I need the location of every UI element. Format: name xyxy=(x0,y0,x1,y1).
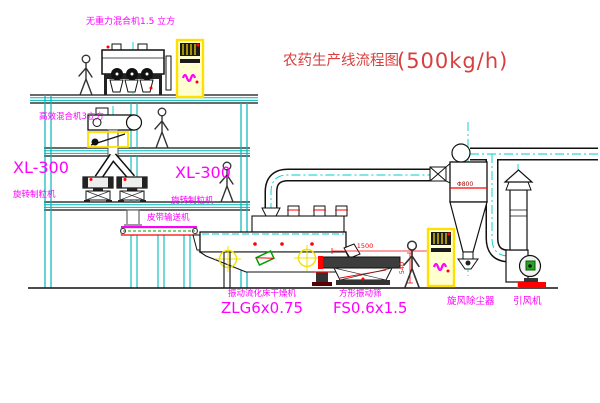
induced-draft-fan xyxy=(506,250,546,287)
fan-base xyxy=(518,282,546,287)
fluid-bed-dryer xyxy=(200,206,360,288)
dim-1500-text: 1500 xyxy=(357,242,374,250)
granulator-left-model: XL-300 xyxy=(13,158,69,177)
bucket-elevator-2 xyxy=(428,229,454,286)
dryer-hoods xyxy=(287,206,348,216)
worker-figure-1 xyxy=(79,55,92,95)
dryer-model-label: ZLG6x0.75 xyxy=(221,299,303,317)
fan-label: 引风机 xyxy=(513,295,542,307)
floor-slab-3 xyxy=(44,202,250,210)
stack-cap xyxy=(505,170,532,182)
v-chute xyxy=(98,156,132,178)
mixer-discharge-pipe xyxy=(108,130,118,157)
process-flow-diagram: 1500 540 Φ800 xyxy=(0,0,600,403)
page-title-capacity: (500kg/h) xyxy=(397,49,508,73)
discharge-duct xyxy=(124,210,142,227)
sieve-name-label: 方形振动筛 xyxy=(339,288,382,299)
granulator-right-model: XL-300 xyxy=(175,163,231,182)
granulator-left-name: 旋转制粒机 xyxy=(13,189,56,200)
belt-conveyor xyxy=(121,227,198,235)
sieve-model-label: FS0.6x1.5 xyxy=(333,299,407,317)
dryer-support-foot xyxy=(312,272,332,286)
floor-slab-1 xyxy=(30,95,258,103)
conveyor-columns xyxy=(131,235,190,288)
bucket-elevator-1 xyxy=(177,40,203,97)
exhaust-stack xyxy=(505,170,532,250)
worker-figure-2 xyxy=(155,108,168,148)
gravity-mixer xyxy=(102,44,171,95)
duct-valve-icon xyxy=(430,167,446,181)
cyclone-dim-text: Φ800 xyxy=(457,181,473,188)
gravity-mixer-label: 无重力混合机1.5 立方 xyxy=(86,15,175,27)
dryer-name-label: 振动流化床干燥机 xyxy=(228,288,297,299)
high-eff-mixer-label: 高效混合机3立方 xyxy=(39,111,104,122)
page-title: 农药生产线流程图 xyxy=(283,52,399,69)
worker-figure-4 xyxy=(404,241,419,287)
cyclone-outlet-pipes xyxy=(470,150,598,256)
belt-conveyor-label: 皮带输送机 xyxy=(147,212,190,223)
floor-slab-2 xyxy=(44,148,250,156)
granulator-right-name: 旋转制粒机 xyxy=(171,195,214,206)
granulator-left xyxy=(83,177,113,203)
cyclone-label: 旋风除尘器 xyxy=(447,295,495,307)
diagram-canvas: 1500 540 Φ800 xyxy=(0,0,600,403)
cyclone-top-outlet xyxy=(452,144,470,162)
granulator-right xyxy=(117,177,147,203)
